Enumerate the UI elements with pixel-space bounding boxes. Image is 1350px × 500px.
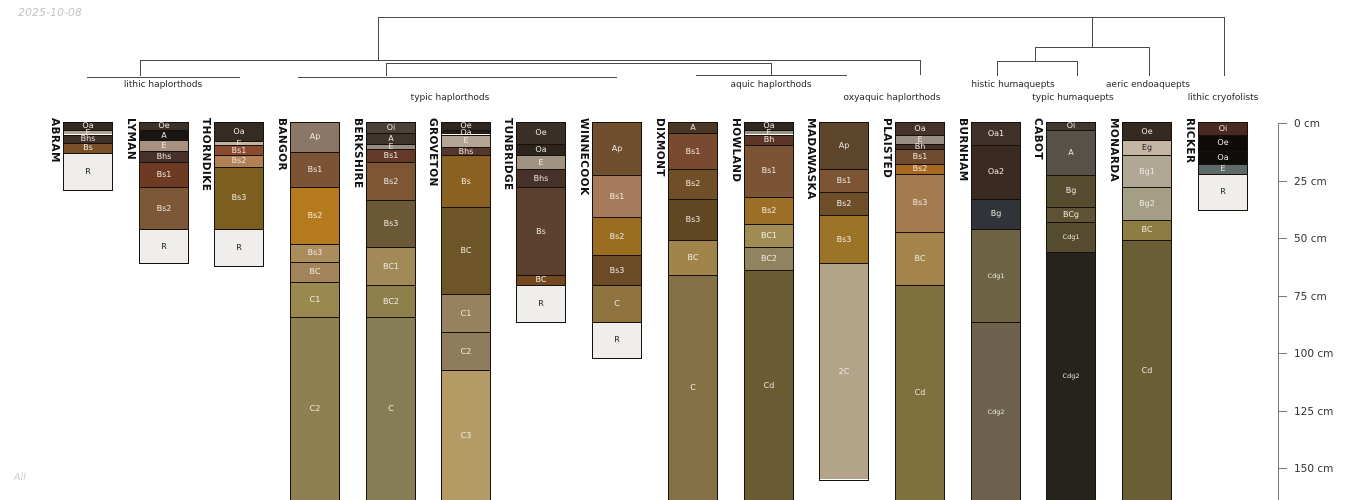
horizon-label: Bhs [81,136,96,142]
cluster-label-aquic-haplorthods: aquic haplorthods [730,80,811,90]
horizon-GROVETON-BC: BC [442,207,490,294]
dendrogram-segment [87,77,240,78]
dendrogram-segment [298,77,617,78]
profile-column-THORNDIKE: OaEBs1Bs2Bs3R [214,122,264,267]
column-name-TUNBRIDGE: TUNBRIDGE [502,118,513,191]
horizon-label: Bs [461,179,471,185]
horizon-WINNECOOK-Bs1: Bs1 [593,175,641,218]
horizon-ABRAM-R: R [64,153,112,190]
horizon-HOWLAND-Bs1: Bs1 [745,145,793,197]
horizon-BURNHAM-Bg: Bg [972,199,1020,229]
horizon-THORNDIKE-R: R [215,229,263,266]
horizon-LYMAN-Bs2: Bs2 [140,187,188,228]
column-name-CABOT: CABOT [1032,118,1043,160]
horizon-MONARDA-Eg: Eg [1123,140,1171,155]
horizon-label: A [1068,150,1073,156]
horizon-label: Bs1 [837,178,852,184]
horizon-label: E [463,138,468,144]
horizon-MADAWASKA-2C: 2C [820,263,868,479]
horizon-label: BC2 [761,256,777,262]
horizon-label: Oi [387,125,396,131]
horizon-label: Bs [83,145,93,151]
horizon-label: Bs2 [686,181,701,187]
horizon-label: Oa [914,126,925,132]
horizon-label: C2 [461,349,472,355]
horizon-label: BC [915,256,926,262]
horizon-label: Bs1 [762,168,777,174]
horizon-label: Bs1 [610,194,625,200]
horizon-label: Bs3 [308,250,323,256]
dendrogram-segment [920,60,921,75]
profile-column-HOWLAND: OaEBhBs1Bs2BC1BC2Cd [744,122,794,500]
horizon-LYMAN-R: R [140,229,188,264]
horizon-label: Oi [1219,126,1228,132]
column-name-PLAISTED: PLAISTED [881,118,892,178]
horizon-PLAISTED-Bs3: Bs3 [896,174,944,233]
horizon-label: Bs2 [232,158,247,164]
cluster-label-typic-humaquepts: typic humaquepts [1032,93,1113,103]
depth-tick-100 [1278,353,1287,354]
dendrogram-segment [997,61,998,76]
horizon-ABRAM-Bs: Bs [64,143,112,153]
column-name-WINNECOOK: WINNECOOK [578,118,589,196]
horizon-LYMAN-Bhs: Bhs [140,151,188,163]
horizon-label: Bg [991,211,1002,217]
horizon-MONARDA-Oe: Oe [1123,123,1171,140]
dendrogram-segment [386,63,771,64]
horizon-label: Bs2 [762,208,777,214]
horizon-label: BC1 [761,233,777,239]
column-name-BANGOR: BANGOR [276,118,287,171]
horizon-label: BC [536,277,547,283]
horizon-label: Bs3 [913,200,928,206]
horizon-label: Cdg2 [988,409,1005,415]
depth-tick-label-75: 75 cm [1294,291,1327,303]
horizon-MONARDA-BC: BC [1123,220,1171,241]
horizon-BERKSHIRE-Bs2: Bs2 [367,162,415,200]
horizon-CABOT-A: A [1047,130,1095,175]
depth-tick-0 [1278,123,1287,124]
column-name-DIXMONT: DIXMONT [654,118,665,177]
dendrogram-segment [1149,47,1150,76]
depth-tick-label-150: 150 cm [1294,463,1333,475]
horizon-label: BC [688,255,699,261]
horizon-MONARDA-Bg2: Bg2 [1123,187,1171,219]
depth-tick-label-125: 125 cm [1294,406,1333,418]
horizon-MADAWASKA-Ap: Ap [820,123,868,169]
horizon-label: Bs2 [913,166,928,172]
horizon-label: Bs1 [686,149,701,155]
horizon-DIXMONT-Bs2: Bs2 [669,169,717,199]
horizon-label: Bs1 [232,148,247,154]
horizon-label: Bhs [534,176,549,182]
horizon-label: Ap [310,134,321,140]
horizon-THORNDIKE-Bs2: Bs2 [215,155,263,167]
horizon-TUNBRIDGE-BC: BC [517,275,565,285]
depth-tick-125 [1278,411,1287,412]
cluster-label-lithic-haplorthods: lithic haplorthods [124,80,202,90]
horizon-MADAWASKA-Bs3: Bs3 [820,215,868,263]
profile-column-MADAWASKA: ApBs1Bs2Bs32C [819,122,869,481]
horizon-label: Bs1 [157,172,172,178]
horizon-RICKER-Oi: Oi [1199,123,1247,135]
horizon-MONARDA-Cd: Cd [1123,240,1171,500]
horizon-label: Oa2 [988,169,1004,175]
horizon-CABOT-Oi: Oi [1047,123,1095,130]
horizon-label: BC2 [383,299,399,305]
depth-tick-150 [1278,468,1287,469]
horizon-THORNDIKE-Bs1: Bs1 [215,145,263,155]
horizon-PLAISTED-Bs1: Bs1 [896,149,944,164]
horizon-label: Bs2 [157,206,172,212]
horizon-label: C [388,406,394,412]
dendrogram-segment [378,17,379,60]
horizon-DIXMONT-A: A [669,123,717,133]
horizon-label: Cd [1142,368,1153,374]
horizon-label: Bg2 [1139,201,1155,207]
column-name-BURNHAM: BURNHAM [957,118,968,182]
horizon-label: E [1220,166,1225,172]
horizon-BANGOR-C1: C1 [291,282,339,318]
horizon-PLAISTED-BC: BC [896,232,944,285]
horizon-label: Bs2 [308,213,323,219]
column-name-ABRAM: ABRAM [49,118,60,163]
horizon-label: Oa [535,147,546,153]
horizon-label: Bhs [459,149,474,155]
profile-column-LYMAN: OeAEBhsBs1Bs2R [139,122,189,264]
horizon-CABOT-Bg: Bg [1047,175,1095,207]
horizon-label: C [690,385,696,391]
horizon-label: E [538,160,543,166]
horizon-TUNBRIDGE-Bhs: Bhs [517,169,565,187]
horizon-BANGOR-BC: BC [291,262,339,282]
horizon-label: E [161,143,166,149]
horizon-label: R [538,301,544,307]
horizon-BERKSHIRE-BC1: BC1 [367,247,415,285]
profile-column-PLAISTED: OaEBhBs1Bs2Bs3BCCd [895,122,945,500]
horizon-label: A [690,125,695,131]
profile-column-DIXMONT: ABs1Bs2Bs3BCC [668,122,718,500]
horizon-label: Cdg1 [988,273,1005,279]
horizon-BURNHAM-Cdg1: Cdg1 [972,229,1020,322]
horizon-label: Cd [764,383,775,389]
horizon-label: R [85,169,91,175]
horizon-ABRAM-Bhs: Bhs [64,135,112,143]
profile-column-CABOT: OiABgBCgCdg1Cdg2 [1046,122,1096,500]
horizon-BERKSHIRE-C: C [367,317,415,500]
horizon-label: Bs1 [913,154,928,160]
column-name-LYMAN: LYMAN [125,118,136,160]
horizon-label: Oa [1217,155,1228,161]
cluster-label-lithic-cryofolists: lithic cryofolists [1188,93,1259,103]
column-name-MADAWASKA: MADAWASKA [805,118,816,200]
horizon-RICKER-Oa: Oa [1199,151,1247,165]
horizon-label: A [161,133,166,139]
horizon-label: Bh [764,137,775,143]
dendrogram-segment [1077,61,1078,76]
horizon-RICKER-E: E [1199,164,1247,173]
horizon-label: Oa1 [988,131,1004,137]
horizon-label: BC [310,269,321,275]
figure-footer: All [14,472,26,483]
cluster-label-aeric-endoaquepts: aeric endoaquepts [1106,80,1190,90]
dendrogram-segment [997,61,1077,62]
dendrogram-segment [1224,17,1225,76]
horizon-CABOT-BCg: BCg [1047,207,1095,222]
profile-column-MONARDA: OeEgBg1Bg2BCCd [1122,122,1172,500]
horizon-CABOT-Cdg1: Cdg1 [1047,222,1095,252]
horizon-MADAWASKA-Bs2: Bs2 [820,192,868,215]
horizon-label: BC1 [383,264,399,270]
horizon-WINNECOOK-Ap: Ap [593,123,641,175]
horizon-DIXMONT-BC: BC [669,240,717,275]
dendrogram-segment [696,75,847,76]
profile-column-WINNECOOK: ApBs1Bs2Bs3CR [592,122,642,359]
horizon-label: Bs [536,229,546,235]
horizon-label: Bs3 [384,221,399,227]
depth-tick-label-0: 0 cm [1294,118,1320,130]
horizon-WINNECOOK-Bs3: Bs3 [593,255,641,285]
horizon-label: C3 [461,433,472,439]
horizon-BANGOR-Ap: Ap [291,123,339,152]
horizon-HOWLAND-BC1: BC1 [745,224,793,247]
column-name-GROVETON: GROVETON [427,118,438,187]
horizon-GROVETON-Bs: Bs [442,155,490,207]
horizon-BANGOR-Bs1: Bs1 [291,152,339,188]
horizon-RICKER-Oe: Oe [1199,135,1247,151]
horizon-GROVETON-C3: C3 [442,370,490,500]
profile-column-BANGOR: ApBs1Bs2Bs3BCC1C2 [290,122,340,500]
horizon-label: BC [1142,227,1153,233]
horizon-label: Cdg2 [1063,373,1080,379]
horizon-label: Bs1 [384,153,399,159]
dendrogram-segment [140,60,141,76]
horizon-BERKSHIRE-Bs3: Bs3 [367,200,415,247]
column-name-HOWLAND: HOWLAND [730,118,741,182]
horizon-label: Bs1 [308,167,323,173]
profile-column-RICKER: OiOeOaER [1198,122,1248,211]
horizon-label: C1 [461,311,472,317]
horizon-HOWLAND-Bs2: Bs2 [745,197,793,225]
horizon-label: Bs3 [837,237,852,243]
horizon-label: BC [461,248,472,254]
depth-tick-25 [1278,181,1287,182]
dendrogram-segment [771,63,772,75]
column-name-RICKER: RICKER [1184,118,1195,164]
profile-column-GROVETON: OeOaEBhsBsBCC1C2C3 [441,122,491,500]
horizon-label: Oe [535,130,546,136]
horizon-TUNBRIDGE-Bs: Bs [517,187,565,274]
depth-tick-75 [1278,296,1287,297]
depth-tick-50 [1278,238,1287,239]
horizon-label: R [236,245,242,251]
horizon-label: Oe [158,123,169,129]
horizon-BERKSHIRE-Bs1: Bs1 [367,149,415,162]
dendrogram-segment [386,63,387,77]
horizon-label: Oe [1217,140,1228,146]
profile-column-BERKSHIRE: OiAEBs1Bs2Bs3BC1BC2C [366,122,416,500]
horizon-label: Ap [839,143,850,149]
horizon-BANGOR-Bs2: Bs2 [291,187,339,243]
horizon-HOWLAND-Bh: Bh [745,135,793,145]
horizon-GROVETON-Bhs: Bhs [442,147,490,155]
horizon-DIXMONT-C: C [669,275,717,500]
horizon-HOWLAND-Cd: Cd [745,270,793,500]
soil-profile-figure: 2025-10-08 lithic haplorthodstypic haplo… [0,0,1350,500]
horizon-BERKSHIRE-Oi: Oi [367,123,415,133]
profile-column-BURNHAM: Oa1Oa2BgCdg1Cdg2 [971,122,1021,500]
horizon-PLAISTED-Bs2: Bs2 [896,164,944,173]
horizon-LYMAN-E: E [140,140,188,150]
horizon-label: C1 [310,297,321,303]
horizon-LYMAN-Bs1: Bs1 [140,162,188,187]
depth-tick-label-50: 50 cm [1294,233,1327,245]
profile-column-ABRAM: OaEBhsBsR [63,122,113,191]
horizon-PLAISTED-Cd: Cd [896,285,944,500]
horizon-label: Bg [1066,188,1077,194]
horizon-label: Oa [233,129,244,135]
dendrogram-segment [1035,47,1036,61]
horizon-label: C2 [310,406,321,412]
horizon-BANGOR-C2: C2 [291,317,339,500]
horizon-label: Bs2 [610,234,625,240]
horizon-THORNDIKE-Bs3: Bs3 [215,167,263,229]
column-name-BERKSHIRE: BERKSHIRE [352,118,363,189]
dendrogram-segment [378,17,1224,18]
horizon-TUNBRIDGE-Oe: Oe [517,123,565,144]
depth-tick-label-25: 25 cm [1294,176,1327,188]
horizon-TUNBRIDGE-E: E [517,155,565,169]
dendrogram-segment [1035,47,1149,48]
horizon-label: Oe [1141,129,1152,135]
horizon-BERKSHIRE-BC2: BC2 [367,285,415,317]
horizon-label: Bg1 [1139,169,1155,175]
horizon-DIXMONT-Bs1: Bs1 [669,133,717,169]
horizon-label: Cd [915,390,926,396]
horizon-label: Ap [612,146,623,152]
horizon-label: R [1220,189,1226,195]
horizon-WINNECOOK-C: C [593,285,641,322]
cluster-label-histic-humaquepts: histic humaquepts [971,80,1054,90]
horizon-BURNHAM-Cdg2: Cdg2 [972,322,1020,500]
horizon-TUNBRIDGE-R: R [517,285,565,322]
horizon-HOWLAND-BC2: BC2 [745,247,793,270]
horizon-RICKER-R: R [1199,174,1247,211]
horizon-label: Eg [1142,145,1152,151]
horizon-BANGOR-Bs3: Bs3 [291,244,339,262]
horizon-GROVETON-C1: C1 [442,294,490,332]
horizon-label: Bs3 [686,217,701,223]
horizon-label: BCg [1063,212,1079,218]
horizon-label: 2C [839,369,850,375]
horizon-CABOT-Cdg2: Cdg2 [1047,252,1095,500]
column-name-THORNDIKE: THORNDIKE [200,118,211,191]
horizon-label: C [614,301,620,307]
horizon-label: R [161,244,167,250]
horizon-TUNBRIDGE-Oa: Oa [517,144,565,156]
horizon-label: Cdg1 [1063,234,1080,240]
horizon-DIXMONT-Bs3: Bs3 [669,199,717,240]
horizon-LYMAN-Oe: Oe [140,123,188,130]
dendrogram-segment [140,60,920,61]
horizon-label: Bs3 [610,268,625,274]
horizon-WINNECOOK-R: R [593,322,641,358]
horizon-WINNECOOK-Bs2: Bs2 [593,217,641,255]
horizon-GROVETON-E: E [442,135,490,148]
horizon-PLAISTED-Oa: Oa [896,123,944,135]
horizon-GROVETON-C2: C2 [442,332,490,370]
depth-tick-label-100: 100 cm [1294,348,1333,360]
horizon-label: Bs3 [232,195,247,201]
horizon-LYMAN-A: A [140,130,188,140]
horizon-label: Oi [1067,123,1076,129]
horizon-label: Bs2 [837,201,852,207]
horizon-BURNHAM-Oa2: Oa2 [972,145,1020,199]
dendrogram-segment [1092,17,1093,47]
figure-date: 2025-10-08 [18,6,82,19]
horizon-MONARDA-Bg1: Bg1 [1123,155,1171,187]
cluster-label-oxyaquic-haplorthods: oxyaquic haplorthods [844,93,941,103]
profile-column-TUNBRIDGE: OeOaEBhsBsBCR [516,122,566,323]
horizon-label: Bhs [157,154,172,160]
column-name-MONARDA: MONARDA [1108,118,1119,182]
horizon-label: Bs2 [384,179,399,185]
horizon-MADAWASKA-Bs1: Bs1 [820,169,868,192]
horizon-BURNHAM-Oa1: Oa1 [972,123,1020,145]
horizon-label: R [614,337,620,343]
cluster-label-typic-haplorthods: typic haplorthods [411,93,490,103]
